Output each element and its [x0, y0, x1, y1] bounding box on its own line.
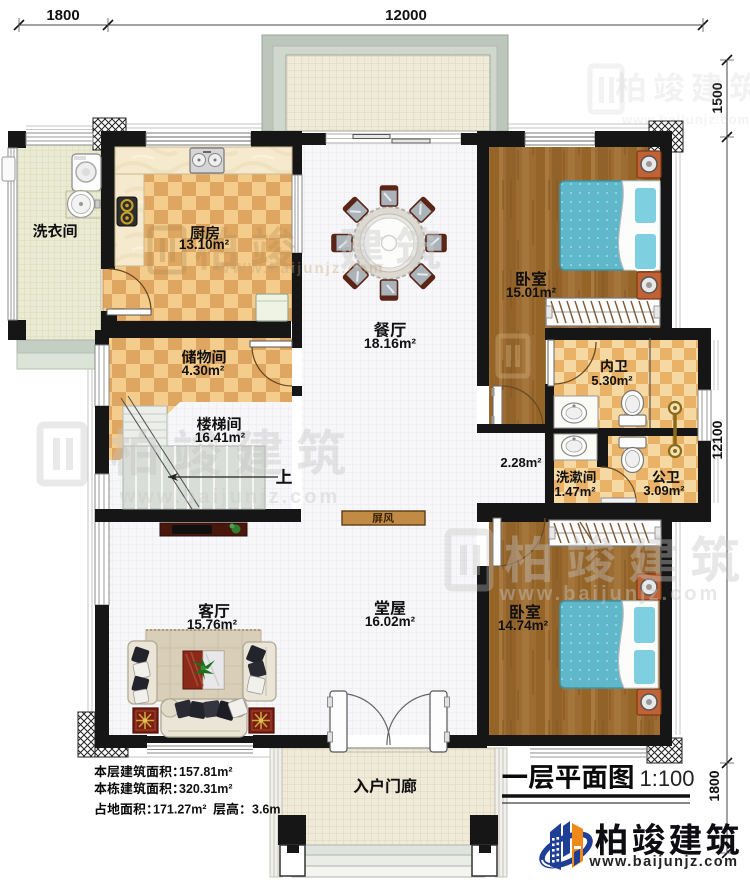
svg-text:1:100: 1:100 — [639, 766, 694, 791]
svg-text:1.47m²: 1.47m² — [554, 484, 596, 499]
svg-text:www.baijunjz.com: www.baijunjz.com — [588, 854, 738, 870]
svg-text:16.41m²: 16.41m² — [195, 430, 246, 445]
svg-text:15.01m²: 15.01m² — [506, 285, 557, 300]
svg-text:157.81m²: 157.81m² — [179, 765, 233, 779]
svg-text:15.76m²: 15.76m² — [187, 617, 238, 632]
svg-text:171.27m²: 171.27m² — [153, 803, 207, 817]
svg-text:WWW.baijunjz.com: WWW.baijunjz.com — [216, 260, 385, 277]
svg-text:18.16m²: 18.16m² — [364, 335, 416, 351]
svg-text:12000: 12000 — [385, 7, 427, 24]
svg-text:www.baijunjz.com: www.baijunjz.com — [499, 583, 721, 605]
svg-text:3.6m: 3.6m — [252, 803, 281, 817]
svg-text:www.baijunjz.com: www.baijunjz.com — [621, 112, 750, 127]
svg-text:3.09m²: 3.09m² — [643, 483, 685, 498]
svg-text:4.30m²: 4.30m² — [182, 363, 225, 378]
svg-text:1800: 1800 — [46, 7, 79, 24]
svg-text:13.10m²: 13.10m² — [179, 237, 230, 252]
svg-text:www.baijunjz.com: www.baijunjz.com — [119, 486, 341, 508]
svg-text:2.28m²: 2.28m² — [500, 455, 542, 470]
svg-text:14.74m²: 14.74m² — [498, 618, 549, 633]
svg-text:1800: 1800 — [706, 770, 722, 801]
svg-text:16.02m²: 16.02m² — [365, 614, 416, 629]
svg-text:320.31m²: 320.31m² — [179, 782, 233, 796]
svg-text:5.30m²: 5.30m² — [591, 373, 633, 388]
